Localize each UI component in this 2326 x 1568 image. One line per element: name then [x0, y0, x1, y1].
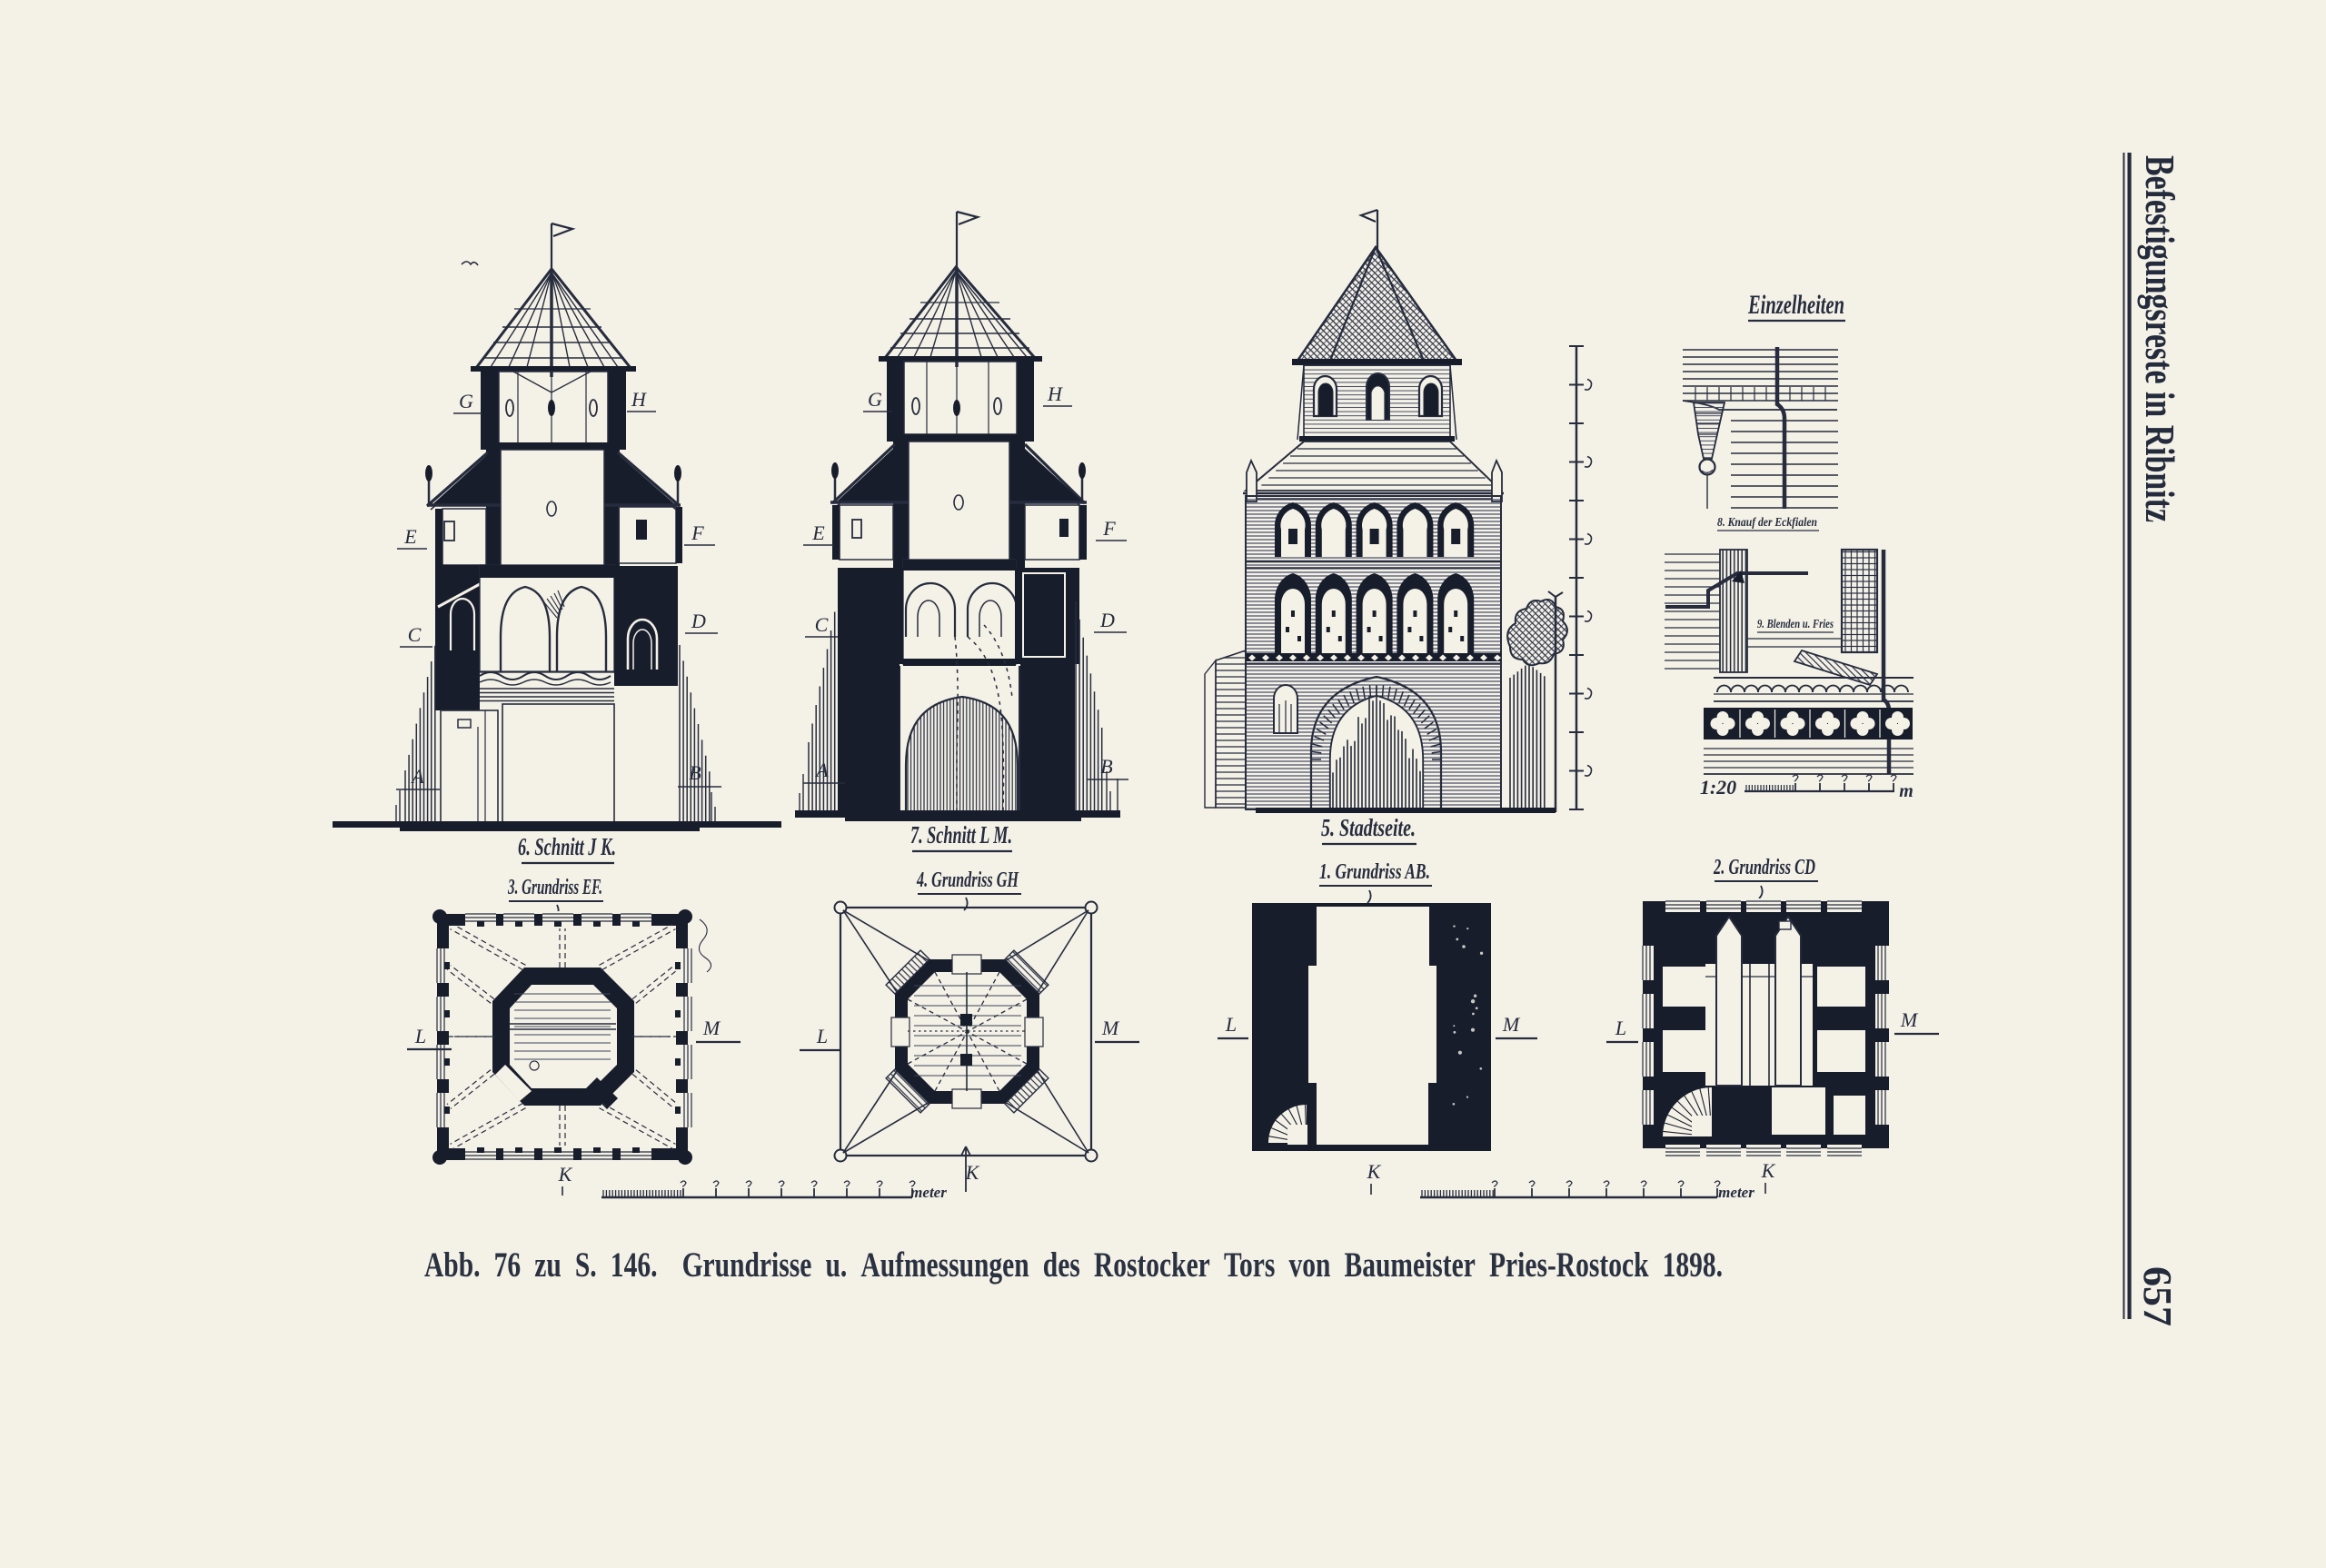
svg-text:Abb.: Abb. [424, 1245, 481, 1285]
svg-text:L: L [1225, 1013, 1237, 1036]
svg-text:K: K [1367, 1160, 1382, 1183]
svg-text:H: H [1047, 382, 1063, 405]
svg-text:zu: zu [534, 1245, 562, 1285]
svg-text:Rostocker: Rostocker [1094, 1245, 1210, 1285]
svg-text:E: E [811, 521, 825, 544]
svg-text:Aufmessungen: Aufmessungen [860, 1245, 1029, 1285]
svg-text:657: 657 [2135, 1266, 2180, 1326]
svg-text:G: G [459, 390, 473, 412]
svg-text:Grundrisse: Grundrisse [682, 1245, 812, 1285]
svg-text:B: B [1100, 755, 1112, 778]
svg-text:M: M [702, 1017, 721, 1039]
svg-text:146.: 146. [611, 1245, 658, 1285]
svg-text:L: L [816, 1025, 828, 1047]
svg-text:S.: S. [575, 1245, 597, 1285]
svg-text:9. Blenden u. Fries: 9. Blenden u. Fries [1757, 618, 1834, 631]
svg-text:meter: meter [910, 1184, 947, 1201]
svg-text:5. Stadtseite.: 5. Stadtseite. [1321, 814, 1416, 841]
svg-text:A: A [814, 759, 829, 781]
svg-text:M: M [1101, 1017, 1120, 1039]
svg-text:L: L [1615, 1017, 1626, 1039]
svg-text:Tors: Tors [1224, 1245, 1275, 1285]
svg-text:L: L [414, 1025, 426, 1047]
svg-text:1898.: 1898. [1663, 1245, 1723, 1285]
svg-text:des: des [1043, 1245, 1080, 1285]
svg-text:1. Grundriss AB.: 1. Grundriss AB. [1319, 860, 1430, 884]
svg-text:M: M [1900, 1008, 1919, 1031]
svg-text:C: C [815, 613, 829, 636]
svg-text:F: F [1102, 517, 1116, 540]
svg-text:8. Knauf der Eckfialen: 8. Knauf der Eckfialen [1717, 516, 1817, 530]
svg-text:Pries-Rostock: Pries-Rostock [1489, 1245, 1649, 1285]
svg-text:D: D [1099, 609, 1115, 631]
svg-text:meter: meter [1718, 1184, 1754, 1201]
svg-text:K: K [558, 1163, 573, 1186]
svg-text:B: B [689, 761, 701, 784]
svg-text:m: m [1899, 781, 1913, 801]
svg-text:1:20: 1:20 [1700, 776, 1736, 799]
svg-text:6. Schnitt J K.: 6. Schnitt J K. [518, 833, 616, 860]
svg-text:F: F [691, 521, 704, 544]
svg-text:4. Grundriss GH: 4. Grundriss GH [916, 868, 1019, 892]
svg-text:Einzelheiten: Einzelheiten [1747, 290, 1844, 320]
svg-text:3. Grundriss EF.: 3. Grundriss EF. [507, 876, 602, 899]
svg-text:A: A [410, 765, 424, 788]
svg-text:Befestigungsreste in Ribnitz: Befestigungsreste in Ribnitz [2137, 155, 2183, 522]
svg-text:M: M [1502, 1013, 1521, 1036]
svg-text:2. Grundriss CD: 2. Grundriss CD [1713, 856, 1815, 879]
svg-text:C: C [408, 623, 422, 646]
svg-text:K: K [965, 1161, 980, 1184]
svg-text:u.: u. [826, 1245, 848, 1285]
svg-text:D: D [691, 610, 706, 632]
svg-text:von: von [1289, 1245, 1331, 1285]
svg-text:Baumeister: Baumeister [1345, 1245, 1476, 1285]
svg-text:7. Schnitt L M.: 7. Schnitt L M. [910, 821, 1012, 849]
svg-text:K: K [1761, 1159, 1776, 1182]
svg-text:G: G [868, 388, 882, 411]
svg-text:H: H [631, 388, 647, 411]
svg-text:76: 76 [494, 1245, 522, 1285]
svg-text:E: E [403, 525, 417, 548]
